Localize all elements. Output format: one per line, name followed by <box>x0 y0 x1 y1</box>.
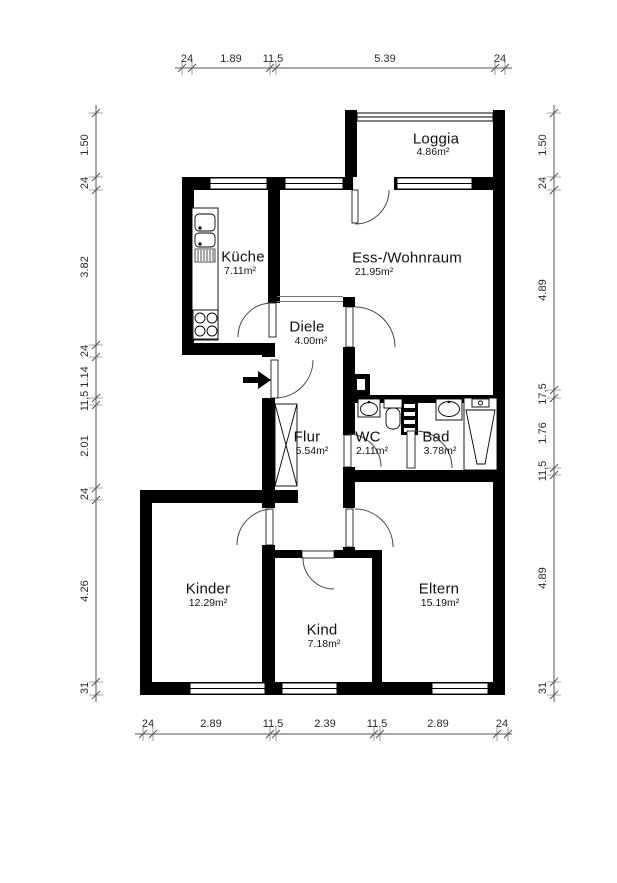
window-kinder <box>190 683 265 694</box>
dim-bottom-0: 24 <box>142 718 154 730</box>
room-label-bad: Bad <box>422 429 449 446</box>
room-area-kind: 7.18m² <box>308 638 341 650</box>
room-area-flur: 5.54m² <box>296 445 329 457</box>
room-label-diele: Diele <box>289 319 324 336</box>
window-kueche <box>210 178 267 189</box>
wc-toilet <box>384 399 402 429</box>
dim-left-7: 24 <box>79 488 91 500</box>
dim-right-0: 1.50 <box>537 134 549 155</box>
dim-right-4: 1.76 <box>537 422 549 443</box>
dim-left-2: 3.82 <box>79 256 91 277</box>
kitchen-fixtures <box>192 208 218 340</box>
dim-right-6: 4.89 <box>537 567 549 588</box>
room-label-wc: WC <box>355 429 380 446</box>
dim-left-4: 1.14 <box>79 366 91 387</box>
duct-shaft-bad <box>401 398 418 435</box>
door-kueche <box>238 303 276 337</box>
wc-sink <box>358 399 380 417</box>
dim-bottom-1: 2.89 <box>200 718 221 730</box>
room-label-kind: Kind <box>307 622 338 639</box>
room-area-bad: 3.78m² <box>424 445 457 457</box>
dim-left-5: 11,5 <box>79 391 91 412</box>
dim-left-0: 1.50 <box>79 134 91 155</box>
kitchen-sink-basin <box>195 214 215 231</box>
room-label-kinder: Kinder <box>186 581 231 598</box>
window-wohnraum <box>285 178 343 189</box>
dim-bottom-6: 24 <box>496 718 508 730</box>
window-kind <box>282 683 337 694</box>
dim-top-4: 24 <box>494 53 506 65</box>
dim-right-7: 31 <box>537 682 549 694</box>
loggia-railing <box>357 113 493 121</box>
door-loggia <box>352 190 389 224</box>
dim-bottom-2: 11.5 <box>263 718 284 730</box>
window-eltern <box>432 683 488 694</box>
door-entrance <box>271 360 313 398</box>
dim-right-1: 24 <box>537 177 549 189</box>
room-area-loggia: 4.86m² <box>417 146 450 158</box>
room-label-loggia: Loggia <box>413 131 459 148</box>
room-area-wc: 2.11m² <box>356 445 388 457</box>
dim-left-3: 24 <box>79 345 91 357</box>
window-loggia <box>397 178 472 189</box>
dim-right-2: 4.89 <box>537 279 549 300</box>
dim-left-9: 31 <box>79 682 91 694</box>
dim-bottom-3: 2.39 <box>314 718 335 730</box>
dim-top-3: 5.39 <box>374 53 395 65</box>
door-kind <box>302 551 334 589</box>
room-label-flur: Flur <box>294 429 321 446</box>
bathtub <box>464 398 497 470</box>
room-area-eltern: 15.19m² <box>421 597 460 609</box>
dim-right-3: 17,5 <box>537 383 549 404</box>
room-label-eltern: Eltern <box>419 581 459 598</box>
dim-left-1: 24 <box>79 177 91 189</box>
kitchen-drainer <box>195 249 215 262</box>
door-wohnraum <box>346 307 395 347</box>
passage-line <box>277 297 343 302</box>
dim-top-1: 1.89 <box>220 53 241 65</box>
room-area-wohnraum: 21.95m² <box>355 266 394 278</box>
dim-left-6: 2.01 <box>79 435 91 456</box>
door-eltern <box>346 509 393 547</box>
dim-bottom-5: 2.89 <box>427 718 448 730</box>
room-area-diele: 4.00m² <box>295 335 328 347</box>
kitchen-stove <box>193 310 218 339</box>
wc-fixtures <box>358 399 402 429</box>
duct-shaft-wohnraum <box>352 374 370 395</box>
door-kinder <box>237 509 273 545</box>
kitchen-sink-basin <box>195 233 215 247</box>
dim-top-2: 11.5 <box>263 53 284 65</box>
floorplan-canvas: Loggia 4.86m² Küche 7.11m² Ess-/Wohnraum… <box>0 0 617 883</box>
dim-bottom-4: 11.5 <box>367 718 388 730</box>
room-area-kueche: 7.11m² <box>224 265 256 277</box>
room-label-kueche: Küche <box>221 249 265 266</box>
dim-right-5: 11,5 <box>537 461 549 482</box>
bad-sink <box>436 399 462 420</box>
dim-top-0: 24 <box>181 53 193 65</box>
dim-left-8: 4.26 <box>79 580 91 601</box>
room-area-kinder: 12.29m² <box>189 597 228 609</box>
room-label-wohnraum: Ess-/Wohnraum <box>352 250 462 267</box>
